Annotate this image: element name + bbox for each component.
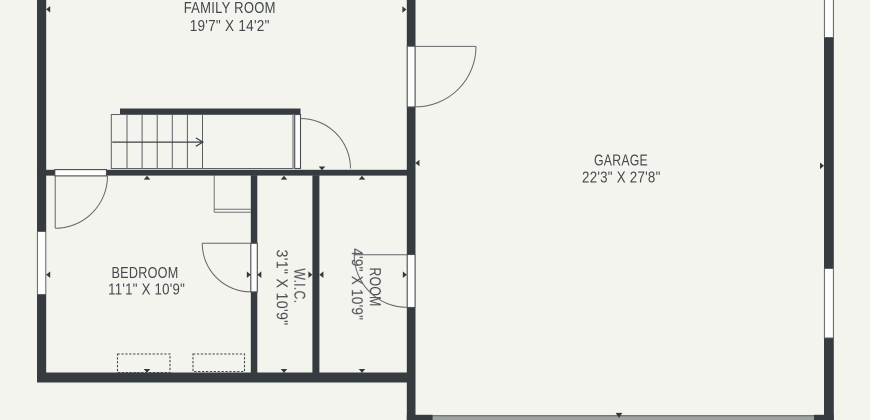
svg-text:19'7" X 14'2": 19'7" X 14'2" bbox=[190, 18, 270, 35]
svg-text:GARAGE: GARAGE bbox=[594, 152, 648, 169]
svg-text:FAMILY ROOM: FAMILY ROOM bbox=[184, 0, 276, 17]
svg-text:22'3" X 27'8": 22'3" X 27'8" bbox=[582, 170, 661, 187]
svg-text:11'1" X 10'9": 11'1" X 10'9" bbox=[108, 281, 185, 298]
svg-text:BEDROOM: BEDROOM bbox=[112, 265, 179, 282]
svg-text:4'9" X 10'9": 4'9" X 10'9" bbox=[348, 248, 365, 320]
svg-text:W.I.C.: W.I.C. bbox=[290, 268, 307, 303]
svg-text:3'1" X 10'9": 3'1" X 10'9" bbox=[273, 250, 290, 326]
